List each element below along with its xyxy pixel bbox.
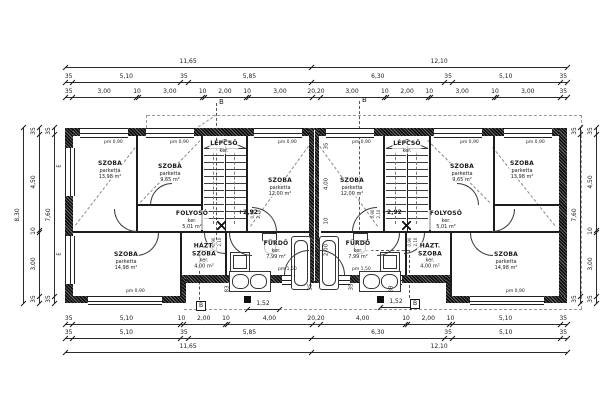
window bbox=[470, 296, 544, 305]
room-area: 14,98 m² bbox=[114, 265, 138, 271]
washing-machine-inner bbox=[383, 255, 397, 269]
dim-label: 35 bbox=[46, 127, 52, 135]
dim-tick bbox=[565, 350, 571, 356]
dim-label: 1,52 bbox=[256, 301, 269, 307]
room-finish: parketta bbox=[114, 259, 138, 265]
room-name: LÉPCSŐ bbox=[210, 140, 237, 148]
annotation-label: pm 0,90 bbox=[104, 141, 123, 146]
eaves-line bbox=[184, 309, 582, 310]
annotation-label: 0,90 bbox=[251, 210, 255, 219]
window-glass-line bbox=[70, 236, 71, 284]
window bbox=[80, 128, 128, 138]
room-area: 7,99 m² bbox=[346, 254, 371, 260]
annotation-label: 35 bbox=[349, 284, 355, 291]
dim-line-left-main bbox=[39, 127, 40, 303]
dim-label: 35 bbox=[559, 330, 567, 336]
dim-line-bottom-main bbox=[65, 338, 567, 339]
dim-tick bbox=[565, 336, 571, 342]
window-glass-line bbox=[504, 133, 552, 134]
eaves-line bbox=[581, 115, 582, 309]
room-label-l-pcs-: LÉPCSŐker. bbox=[209, 140, 238, 154]
door-swing-arc bbox=[114, 209, 137, 232]
dim-label: 35 bbox=[31, 127, 37, 135]
room-finish: ker. bbox=[210, 148, 237, 154]
annotation-label: 2,10 bbox=[218, 238, 222, 247]
dim-line-right-outer bbox=[596, 127, 597, 303]
room-name: SZOBA bbox=[98, 160, 122, 168]
window-glass-line bbox=[254, 133, 302, 134]
dim-line-top-main bbox=[65, 82, 567, 83]
dim-label: 2,00 bbox=[400, 89, 413, 95]
window bbox=[65, 148, 75, 196]
window bbox=[434, 128, 482, 138]
stair-walk-line bbox=[416, 152, 417, 224]
dim-label: 7,60 bbox=[572, 208, 578, 221]
window bbox=[254, 128, 302, 138]
partition-wall bbox=[450, 233, 452, 296]
dim-label: 2,00 bbox=[218, 89, 231, 95]
room-label-f-rd-: FÜRDŐker.7,99 m² bbox=[263, 240, 290, 260]
room-area: 5,01 m² bbox=[430, 224, 462, 230]
dim-label: 5,10 bbox=[499, 330, 512, 336]
annotation-label: 2,10 bbox=[377, 210, 381, 219]
annotation-label: 0,90 bbox=[371, 210, 375, 219]
level-value-label: +2,92 bbox=[382, 210, 402, 216]
door-swing-arc bbox=[136, 233, 159, 256]
dim-label: 3,00 bbox=[97, 89, 110, 95]
room-area: 14,98 m² bbox=[494, 265, 518, 271]
dim-line-terrace-left bbox=[247, 309, 279, 310]
window-glass-line bbox=[326, 133, 374, 134]
dim-label: 35 bbox=[559, 89, 567, 95]
partition-wall bbox=[225, 233, 227, 275]
dim-label: 4,00 bbox=[263, 316, 276, 322]
dim-line-left-total bbox=[23, 127, 24, 303]
dim-tick bbox=[594, 301, 600, 307]
room-finish: parketta bbox=[98, 168, 122, 174]
level-marker-symbol bbox=[217, 221, 226, 230]
window bbox=[326, 128, 374, 138]
room-name: SZOBA bbox=[268, 177, 292, 185]
dim-label: 8,30 bbox=[15, 208, 21, 221]
dim-label: 35 bbox=[65, 74, 73, 80]
annotation-label: 0,90 bbox=[212, 238, 216, 247]
room-name: HÁZT. SZOBA bbox=[418, 242, 442, 257]
dim-line-top-total bbox=[65, 67, 567, 68]
annotation-label: pm 0,90 bbox=[352, 141, 371, 146]
dim-label: 5,10 bbox=[499, 74, 512, 80]
dim-label: 3,00 bbox=[163, 89, 176, 95]
stair-walk-line bbox=[234, 152, 235, 224]
dim-tick bbox=[565, 95, 571, 101]
room-name: FOLYOSÓ bbox=[176, 210, 208, 218]
window bbox=[504, 128, 552, 138]
room-area: 4,00 m² bbox=[192, 264, 216, 270]
dim-line-bottom-detail bbox=[65, 324, 567, 325]
dim-label: 35 bbox=[65, 89, 73, 95]
dim-line-right-inner bbox=[580, 127, 581, 303]
room-finish: parketta bbox=[510, 168, 534, 174]
window-glass-line bbox=[88, 301, 162, 302]
annotation-label: 35 bbox=[308, 284, 314, 291]
dim-label: 2,00 bbox=[422, 316, 435, 322]
terrace-post bbox=[244, 296, 251, 303]
washbasin bbox=[232, 274, 249, 289]
dim-label: 35 bbox=[559, 74, 567, 80]
annotation-label: pm 0,90 bbox=[126, 290, 145, 295]
dim-label: 3,00 bbox=[521, 89, 534, 95]
dim-label: 11,65 bbox=[180, 344, 197, 350]
annotation-label: pm 0,90 bbox=[278, 141, 297, 146]
section-marker-label: B bbox=[410, 299, 420, 309]
room-name: SZOBA bbox=[114, 251, 138, 259]
partition-wall bbox=[246, 136, 248, 231]
window-glass-line bbox=[146, 133, 194, 134]
room-label-szoba: SZOBAparketta12,00 m² bbox=[339, 177, 365, 197]
eaves-line bbox=[146, 115, 147, 128]
room-label-szoba: SZOBAparketta14,98 m² bbox=[113, 251, 139, 271]
room-finish: parketta bbox=[450, 171, 474, 177]
section-marker-label: B bbox=[362, 97, 367, 104]
room-name: FÜRDŐ bbox=[346, 240, 371, 248]
window-glass-line bbox=[434, 133, 482, 134]
window-marker-label: E bbox=[58, 252, 63, 255]
window bbox=[146, 128, 194, 138]
window bbox=[88, 296, 162, 305]
partition-wall bbox=[180, 233, 182, 296]
dim-label: 35 bbox=[572, 295, 578, 303]
door-swing-arc bbox=[457, 183, 479, 205]
annotation-label: pm 0,90 bbox=[170, 141, 189, 146]
room-finish: parketta bbox=[268, 185, 292, 191]
room-name: SZOBA bbox=[494, 251, 518, 259]
room-area: 13,98 m² bbox=[98, 174, 122, 180]
dim-label: 3,00 bbox=[588, 257, 594, 270]
dim-label: 11,65 bbox=[180, 59, 197, 65]
room-label-szoba: SZOBAparketta9,65 m² bbox=[449, 163, 475, 183]
partition-wall bbox=[383, 136, 385, 231]
room-area: 9,65 m² bbox=[158, 177, 182, 183]
wall-segment bbox=[559, 128, 567, 303]
partition-wall bbox=[495, 204, 559, 206]
annotation-label: 10 bbox=[324, 218, 330, 225]
room-label-szoba: SZOBAparketta13,98 m² bbox=[509, 160, 535, 180]
terrace-post bbox=[377, 296, 384, 303]
annotation-label: 2,10 bbox=[414, 238, 418, 247]
dim-label: 35 bbox=[572, 127, 578, 135]
dim-label: 3,00 bbox=[31, 257, 37, 270]
room-name: LÉPCSŐ bbox=[393, 140, 420, 148]
dim-label: 5,10 bbox=[120, 74, 133, 80]
floor-plan-drawing: 11,6512,10355,10355,856,30355,1035353,00… bbox=[0, 0, 600, 402]
dim-label: 35 bbox=[588, 127, 594, 135]
dim-label: 35 bbox=[65, 316, 73, 322]
stair-spine bbox=[407, 146, 408, 231]
dim-label: 5,85 bbox=[243, 74, 256, 80]
dim-label: 12,10 bbox=[431, 344, 448, 350]
dim-label: 10 bbox=[447, 316, 455, 322]
dim-label: 35 bbox=[31, 295, 37, 303]
annotation-label: 0,90 bbox=[408, 238, 412, 247]
dim-line-bottom-total bbox=[65, 352, 567, 353]
window-marker-label: E bbox=[58, 164, 63, 167]
stair-spine bbox=[225, 146, 226, 231]
room-name: SZOBA bbox=[450, 163, 474, 171]
dim-tick bbox=[37, 301, 43, 307]
washbasin bbox=[363, 274, 380, 289]
dim-label: 35 bbox=[559, 316, 567, 322]
room-label-szoba: SZOBAparketta14,98 m² bbox=[493, 251, 519, 271]
dim-label: 5,10 bbox=[499, 316, 512, 322]
dim-label: 3,00 bbox=[273, 89, 286, 95]
stair-walk-line bbox=[213, 152, 214, 224]
room-area: 7,99 m² bbox=[264, 254, 289, 260]
window-glass-line bbox=[80, 133, 128, 134]
room-finish: parketta bbox=[340, 185, 364, 191]
dim-label: 12,10 bbox=[431, 59, 448, 65]
room-label-szoba: SZOBAparketta9,65 m² bbox=[157, 163, 183, 183]
room-finish: ker. bbox=[393, 148, 420, 154]
annotation-label: pm 1,50 bbox=[278, 268, 297, 273]
room-area: 12,00 m² bbox=[268, 191, 292, 197]
dim-label: 7,60 bbox=[46, 208, 52, 221]
window-glass-line bbox=[70, 148, 71, 196]
washbasin bbox=[250, 274, 267, 289]
dim-label: 35 bbox=[65, 330, 73, 336]
dim-label: 6,30 bbox=[371, 330, 384, 336]
dim-label: 35 bbox=[444, 74, 452, 80]
room-name: FOLYOSÓ bbox=[430, 210, 462, 218]
dim-tick bbox=[565, 65, 571, 71]
dim-line-left-inner bbox=[54, 127, 55, 303]
annotation-label: 83 bbox=[225, 286, 231, 293]
annotation-label: pm 0,90 bbox=[460, 141, 479, 146]
section-marker-label: B bbox=[196, 301, 206, 311]
dim-label: 4,50 bbox=[588, 175, 594, 188]
dim-label: 1,52 bbox=[389, 299, 402, 305]
room-area: 5,01 m² bbox=[176, 224, 208, 230]
annotation-label: 4,00 bbox=[324, 178, 330, 190]
room-area: 12,00 m² bbox=[340, 191, 364, 197]
dim-label: 35 bbox=[180, 74, 188, 80]
room-name: SZOBA bbox=[340, 177, 364, 185]
annotation-label: pm 0,90 bbox=[506, 290, 525, 295]
room-label-szoba: SZOBAparketta13,98 m² bbox=[97, 160, 123, 180]
room-name: SZOBA bbox=[510, 160, 534, 168]
section-marker-label: B bbox=[219, 99, 224, 106]
room-name: FÜRDŐ bbox=[264, 240, 289, 248]
dim-label: 4,00 bbox=[356, 316, 369, 322]
dim-label: 5,85 bbox=[243, 330, 256, 336]
annotation-label: pm 0,90 bbox=[526, 141, 545, 146]
annotation-label: 2,10 bbox=[257, 210, 261, 219]
dim-label: 35 bbox=[180, 330, 188, 336]
room-label-folyos-: FOLYOSÓker.5,01 m² bbox=[429, 210, 463, 230]
dim-label: 10 bbox=[178, 316, 186, 322]
door-swing-arc bbox=[492, 209, 515, 232]
dim-label: 35 bbox=[444, 330, 452, 336]
stair-treads bbox=[408, 148, 428, 224]
annotation-label: 2,00 bbox=[324, 244, 330, 256]
dim-label: 2,00 bbox=[197, 316, 210, 322]
annotation-label: 83 bbox=[389, 286, 395, 293]
dim-label: 35 bbox=[588, 295, 594, 303]
party-wall-gap bbox=[314, 130, 315, 281]
dim-label: 6,30 bbox=[371, 74, 384, 80]
room-label-folyos-: FOLYOSÓker.5,01 m² bbox=[175, 210, 209, 230]
dim-label: 5,10 bbox=[120, 316, 133, 322]
level-marker-symbol bbox=[402, 221, 411, 230]
room-label-f-rd-: FÜRDŐker.7,99 m² bbox=[345, 240, 372, 260]
dim-label: 4,50 bbox=[31, 175, 37, 188]
annotation-label: 35 bbox=[324, 143, 330, 150]
room-finish: parketta bbox=[494, 259, 518, 265]
dim-tick bbox=[21, 301, 27, 307]
dim-tick bbox=[565, 80, 571, 86]
window-glass-line bbox=[470, 301, 544, 302]
annotation-label: pm 1,50 bbox=[352, 268, 371, 273]
section-line bbox=[409, 250, 410, 298]
room-area: 4,00 m² bbox=[418, 264, 442, 270]
room-area: 9,65 m² bbox=[450, 177, 474, 183]
dim-label: 5,10 bbox=[120, 330, 133, 336]
window bbox=[65, 236, 75, 284]
dim-tick bbox=[52, 301, 58, 307]
dim-label: 35 bbox=[46, 295, 52, 303]
room-label-l-pcs-: LÉPCSŐker. bbox=[392, 140, 421, 154]
dim-line-terrace-right bbox=[380, 307, 412, 308]
door-swing-arc bbox=[470, 233, 493, 256]
room-label-h-zt-szoba: HÁZT. SZOBAker.4,00 m² bbox=[417, 242, 443, 270]
room-area: 13,98 m² bbox=[510, 174, 534, 180]
dim-tick bbox=[565, 322, 571, 328]
room-finish: parketta bbox=[158, 171, 182, 177]
room-name: SZOBA bbox=[158, 163, 182, 171]
washing-machine-inner bbox=[233, 255, 247, 269]
dim-label: 3,00 bbox=[345, 89, 358, 95]
dim-label: 3,00 bbox=[455, 89, 468, 95]
room-label-szoba: SZOBAparketta12,00 m² bbox=[267, 177, 293, 197]
